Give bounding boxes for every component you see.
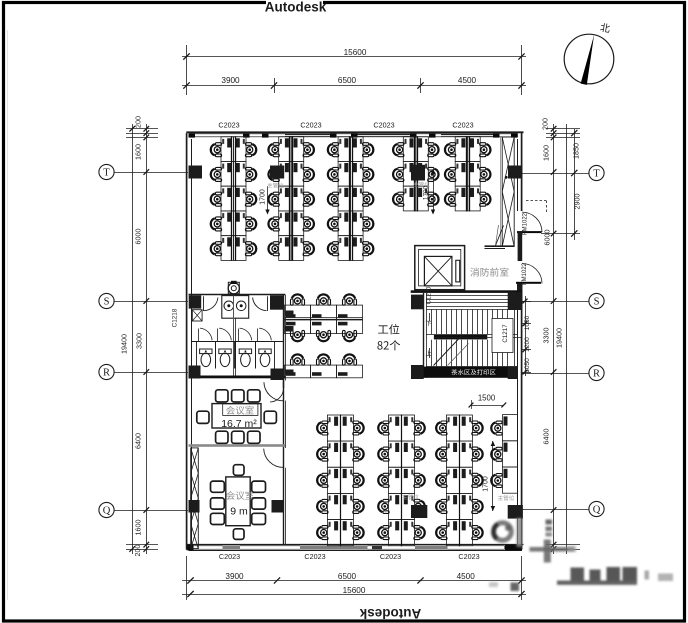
- svg-text:6000: 6000: [134, 229, 143, 245]
- svg-text:3300: 3300: [135, 333, 144, 349]
- svg-text:1050: 1050: [524, 315, 531, 330]
- svg-text:15600: 15600: [343, 586, 366, 595]
- svg-text:Q: Q: [103, 505, 111, 516]
- svg-text:Autodesk: Autodesk: [265, 0, 327, 15]
- svg-text:C2023: C2023: [304, 552, 325, 561]
- svg-text:4500: 4500: [458, 76, 477, 85]
- svg-text:1600: 1600: [542, 145, 551, 161]
- svg-text:C1217: C1217: [502, 324, 509, 343]
- svg-text:C2023: C2023: [218, 121, 239, 130]
- svg-text:1200: 1200: [524, 337, 531, 352]
- svg-text:FM1022: FM1022: [522, 262, 528, 285]
- svg-text:3900: 3900: [225, 572, 244, 581]
- svg-text:C1220: C1220: [427, 286, 433, 304]
- svg-text:T: T: [103, 167, 110, 178]
- svg-text:6500: 6500: [338, 76, 357, 85]
- svg-text:6400: 6400: [134, 433, 143, 449]
- svg-text:C2023: C2023: [219, 552, 240, 561]
- svg-text:9 m: 9 m: [230, 506, 248, 518]
- svg-text:16.7 m²: 16.7 m²: [221, 418, 257, 430]
- svg-text:19400: 19400: [555, 328, 564, 348]
- svg-text:19400: 19400: [120, 334, 129, 354]
- svg-text:1050: 1050: [524, 358, 531, 373]
- svg-text:C1218: C1218: [172, 308, 179, 327]
- svg-text:T: T: [593, 168, 600, 179]
- svg-text:R: R: [593, 368, 600, 379]
- svg-text:1700: 1700: [260, 189, 267, 205]
- svg-text:R: R: [103, 367, 110, 378]
- svg-text:Autodesk: Autodesk: [359, 606, 421, 621]
- svg-text:S: S: [594, 296, 600, 307]
- svg-text:3300: 3300: [542, 328, 551, 344]
- svg-text:200: 200: [541, 118, 550, 130]
- svg-text:1700: 1700: [482, 476, 489, 492]
- svg-text:6000: 6000: [543, 230, 552, 246]
- svg-text:1600: 1600: [134, 144, 143, 160]
- svg-text:6400: 6400: [542, 429, 551, 445]
- svg-text:C2023: C2023: [300, 121, 321, 130]
- svg-text:6500: 6500: [338, 572, 357, 581]
- svg-text:C2023: C2023: [380, 552, 401, 561]
- svg-text:S: S: [104, 296, 110, 307]
- svg-text:1700: 1700: [423, 185, 430, 200]
- svg-text:Q: Q: [593, 504, 601, 515]
- svg-text:200: 200: [133, 545, 142, 557]
- svg-text:1600: 1600: [134, 520, 143, 536]
- svg-text:4500: 4500: [457, 572, 476, 581]
- svg-text:C2023: C2023: [458, 552, 479, 561]
- svg-text:15600: 15600: [344, 48, 367, 57]
- svg-text:2900: 2900: [573, 194, 582, 210]
- svg-text:1500: 1500: [478, 394, 496, 403]
- svg-text:C2023: C2023: [452, 121, 473, 130]
- svg-text:3900: 3900: [221, 76, 240, 85]
- svg-text:1850: 1850: [572, 143, 581, 159]
- svg-text:200: 200: [134, 116, 143, 128]
- svg-text:C2023: C2023: [373, 121, 394, 130]
